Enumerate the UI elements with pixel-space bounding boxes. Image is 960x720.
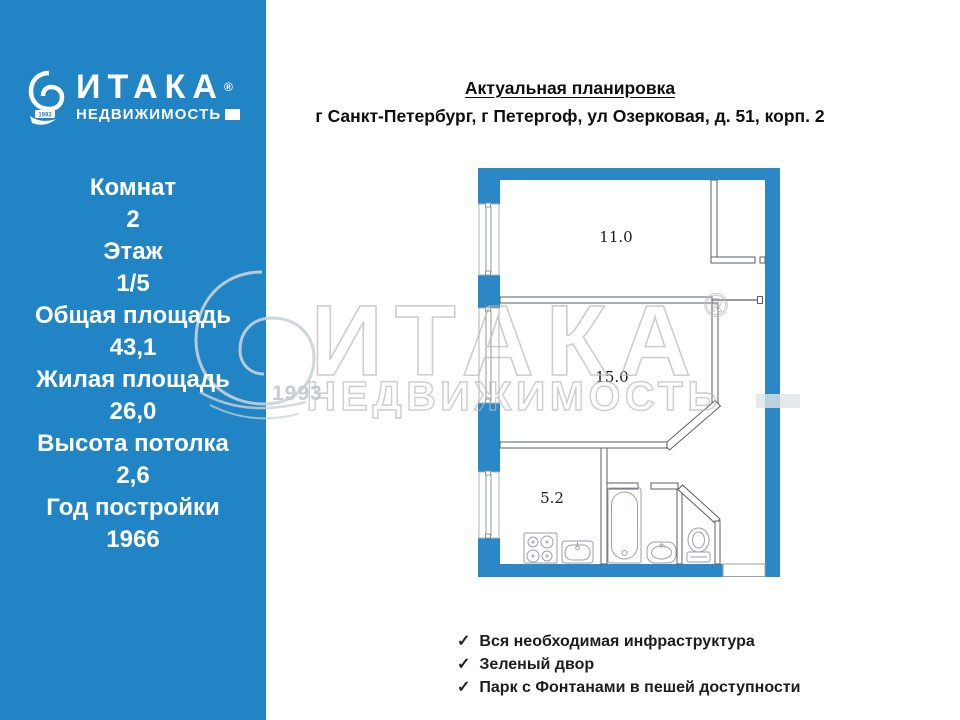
- logo-brand-text: ИТАКА: [76, 68, 224, 106]
- logo-sub-text: НЕДВИЖИМОСТЬ: [76, 106, 221, 123]
- check-icon: ✓: [457, 676, 470, 699]
- feature-item: ✓ Зеленый двор: [457, 653, 800, 676]
- logo-text: ИТАКА® НЕДВИЖИМОСТЬ: [76, 70, 240, 123]
- stove-icon: [524, 533, 557, 563]
- detail-value: 43,1: [0, 332, 266, 364]
- detail-value: 2: [0, 204, 266, 236]
- logo-sub-line: НЕДВИЖИМОСТЬ: [76, 106, 240, 123]
- feature-text: Вся необходимая инфраструктура: [479, 630, 754, 653]
- detail-value: 26,0: [0, 396, 266, 428]
- windows: [479, 203, 499, 538]
- wave-logo-icon: 1993: [28, 70, 68, 130]
- bathtub-icon: [608, 488, 641, 563]
- detail-label: Этаж: [0, 236, 266, 268]
- detail-label: Год постройки: [0, 492, 266, 524]
- room-area-label: 15.0: [595, 368, 628, 386]
- room-area-label: 5.2: [540, 489, 564, 507]
- brand-logo: 1993 ИТАКА® НЕДВИЖИМОСТЬ: [28, 70, 240, 130]
- property-details: Комнат 2 Этаж 1/5 Общая площадь 43,1 Жил…: [0, 172, 266, 556]
- detail-label: Жилая площадь: [0, 364, 266, 396]
- check-icon: ✓: [457, 653, 470, 676]
- detail-value: 1/5: [0, 268, 266, 300]
- detail-label: Общая площадь: [0, 300, 266, 332]
- floor-plan: 11.0 15.0 5.2: [478, 168, 780, 578]
- flyer-root: 1993 ИТАКА® НЕДВИЖИМОСТЬ Комнат 2 Этаж 1…: [0, 0, 960, 720]
- entrance-opening: [723, 564, 765, 577]
- logo-year: 1993: [38, 113, 52, 119]
- feature-item: ✓ Парк с Фонтанами в пешей доступности: [457, 676, 800, 699]
- detail-value: 2,6: [0, 460, 266, 492]
- feature-text: Парк с Фонтанами в пешей доступности: [479, 676, 800, 699]
- feature-text: Зеленый двор: [479, 653, 594, 676]
- kitchen-sink-icon: [562, 541, 593, 563]
- logo-dash: [225, 109, 240, 120]
- toilet-icon: [687, 528, 710, 562]
- watermark-year: 1993: [272, 382, 323, 405]
- page-address: г Санкт-Петербург, г Петергоф, ул Озерко…: [270, 106, 870, 127]
- page-title: Актуальная планировка: [290, 78, 850, 99]
- check-icon: ✓: [457, 630, 470, 653]
- bathroom-sink-icon: [647, 542, 676, 563]
- detail-label: Комнат: [0, 172, 266, 204]
- feature-item: ✓ Вся необходимая инфраструктура: [457, 630, 800, 653]
- room-area-label: 11.0: [599, 228, 632, 246]
- feature-list: ✓ Вся необходимая инфраструктура ✓ Зелен…: [457, 630, 800, 699]
- detail-label: Высота потолка: [0, 428, 266, 460]
- detail-value: 1966: [0, 524, 266, 556]
- logo-registered-mark: ®: [224, 80, 233, 94]
- logo-brand-line: ИТАКА®: [76, 70, 240, 104]
